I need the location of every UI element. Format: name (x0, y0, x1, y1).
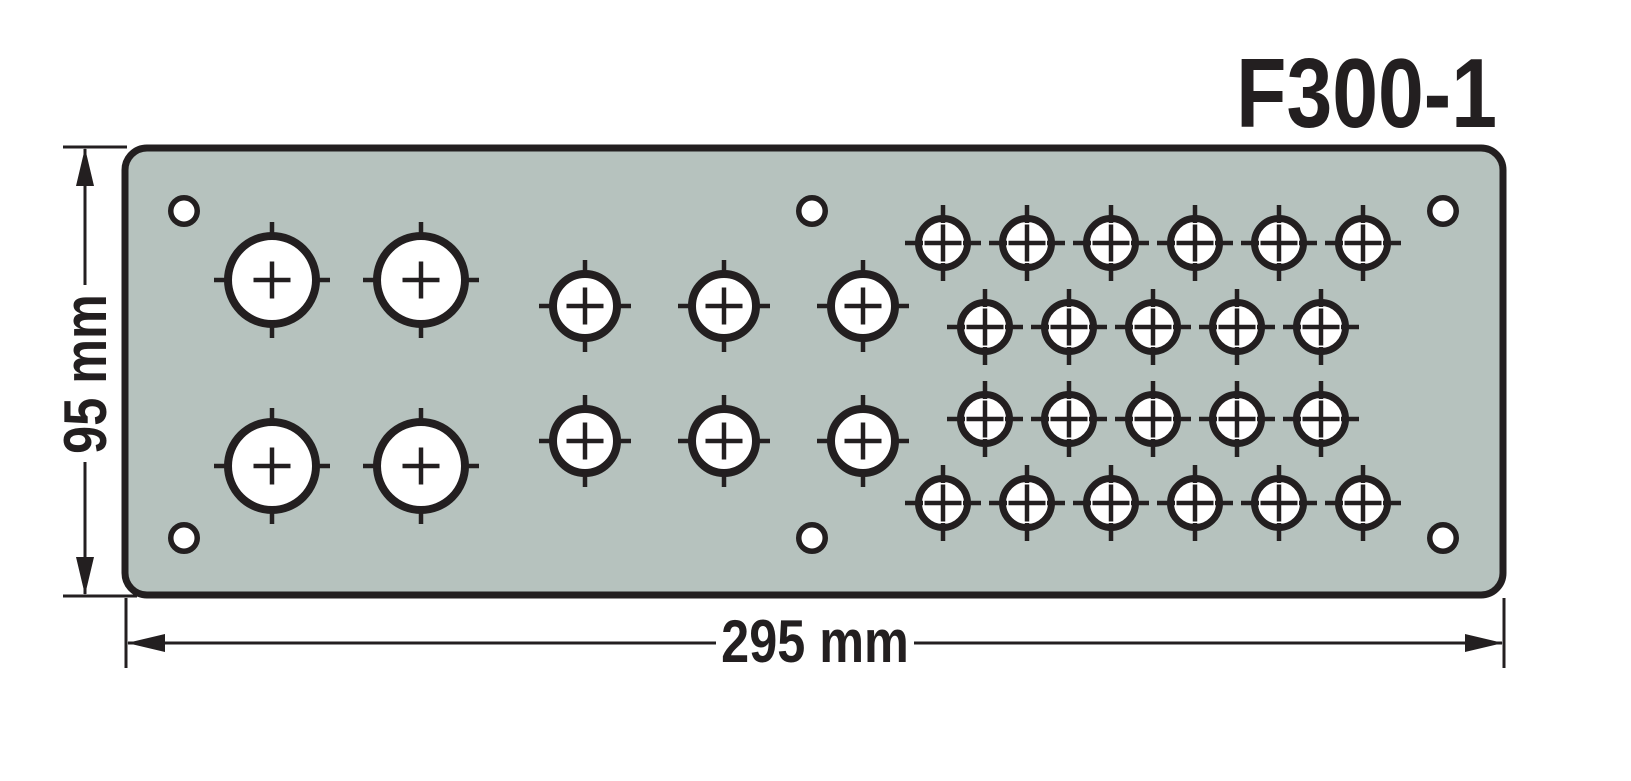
mounting-hole (171, 525, 198, 552)
part-title: F300-1 (1236, 39, 1497, 148)
mounting-hole (1430, 198, 1457, 225)
width-arrow-left (127, 634, 165, 652)
mounting-hole (1430, 525, 1457, 552)
mounting-hole-circle (171, 198, 198, 225)
width-arrow-right (1465, 634, 1503, 652)
mounting-hole (799, 198, 826, 225)
mounting-hole-circle (1430, 525, 1457, 552)
mounting-hole-circle (1430, 198, 1457, 225)
drawing-canvas: F300-1 95 mm 295 mm (0, 0, 1631, 781)
width-dimension-label: 295 mm (721, 608, 909, 675)
mounting-hole-circle (171, 525, 198, 552)
height-dimension-label: 95 mm (52, 294, 119, 454)
technical-drawing: F300-1 95 mm 295 mm (0, 0, 1631, 781)
mounting-hole-circle (799, 198, 826, 225)
mounting-hole (799, 525, 826, 552)
height-arrow-down (76, 557, 94, 595)
width-dimension: 295 mm (126, 598, 1504, 675)
height-arrow-up (76, 148, 94, 186)
mounting-hole-circle (799, 525, 826, 552)
mounting-hole (171, 198, 198, 225)
